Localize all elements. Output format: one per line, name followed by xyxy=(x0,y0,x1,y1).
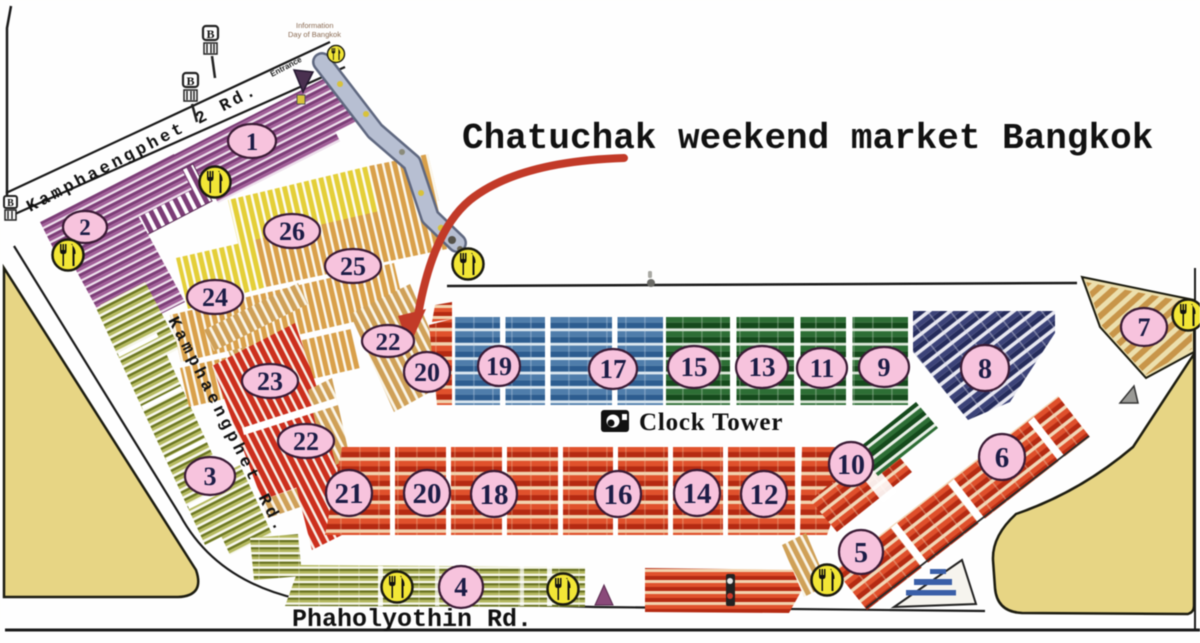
svg-text:Information: Information xyxy=(296,21,334,30)
svg-text:20: 20 xyxy=(414,358,440,387)
svg-text:22: 22 xyxy=(376,329,401,356)
svg-text:15: 15 xyxy=(681,352,708,382)
svg-text:22: 22 xyxy=(293,427,319,456)
svg-text:13: 13 xyxy=(749,352,776,382)
svg-text:25: 25 xyxy=(340,252,366,281)
svg-text:Day of Bangkok: Day of Bangkok xyxy=(288,30,341,39)
svg-text:5: 5 xyxy=(854,538,868,569)
svg-text:6: 6 xyxy=(995,442,1010,474)
svg-text:12: 12 xyxy=(750,479,779,511)
svg-text:7: 7 xyxy=(1138,313,1151,342)
svg-text:2: 2 xyxy=(79,215,91,240)
svg-text:Chatuchak weekend market Bangk: Chatuchak weekend market Bangkok xyxy=(462,118,1153,159)
svg-text:11: 11 xyxy=(810,354,835,383)
svg-text:16: 16 xyxy=(604,479,633,511)
svg-text:10: 10 xyxy=(837,450,865,481)
svg-text:Phaholyothin Rd.: Phaholyothin Rd. xyxy=(292,605,532,634)
svg-text:B: B xyxy=(206,27,214,41)
svg-text:21: 21 xyxy=(335,478,364,510)
svg-text:9: 9 xyxy=(878,353,891,382)
svg-text:Clock Tower: Clock Tower xyxy=(639,409,783,436)
svg-text:1: 1 xyxy=(246,129,259,156)
svg-text:8: 8 xyxy=(978,354,992,385)
svg-text:B: B xyxy=(7,198,14,209)
svg-text:20: 20 xyxy=(413,478,442,510)
svg-text:26: 26 xyxy=(279,217,305,246)
svg-text:B: B xyxy=(186,74,194,88)
svg-text:19: 19 xyxy=(486,352,512,381)
svg-text:14: 14 xyxy=(683,478,712,510)
svg-text:24: 24 xyxy=(202,283,228,312)
svg-text:18: 18 xyxy=(480,479,509,511)
svg-text:17: 17 xyxy=(600,354,627,384)
svg-text:3: 3 xyxy=(204,462,217,491)
svg-text:23: 23 xyxy=(257,367,283,396)
svg-text:4: 4 xyxy=(454,572,468,602)
